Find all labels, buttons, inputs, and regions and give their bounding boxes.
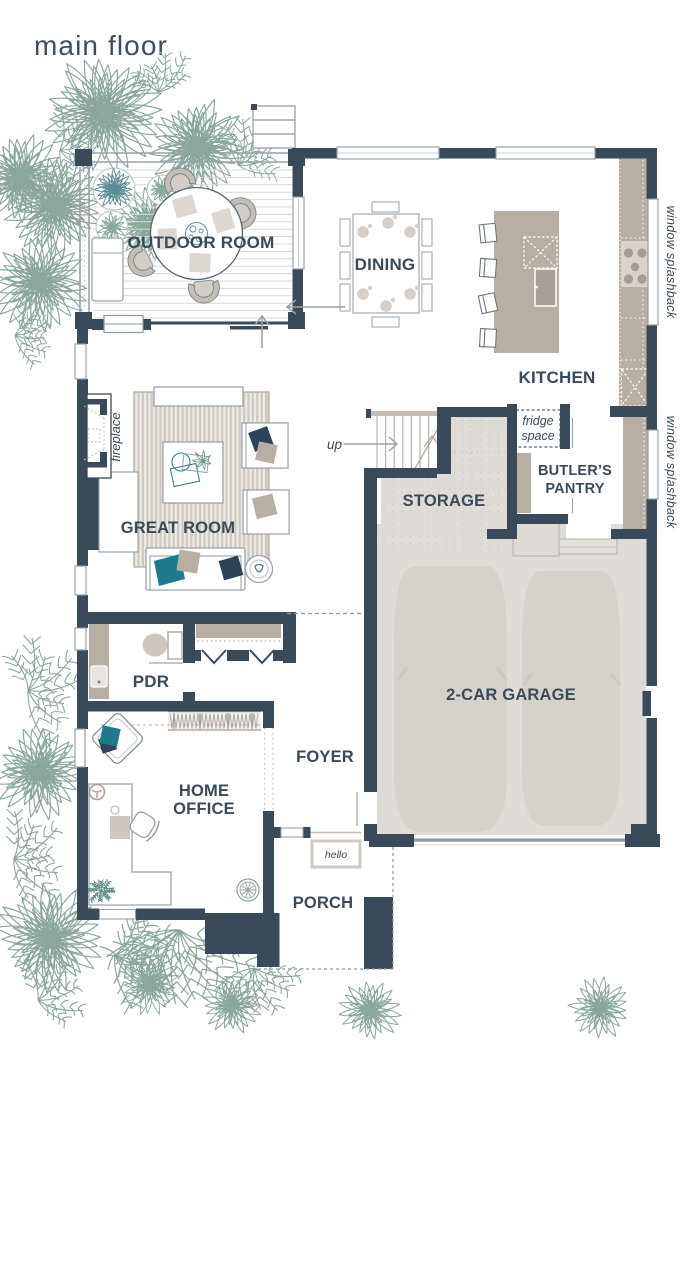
svg-text:PDR: PDR bbox=[133, 672, 170, 691]
svg-text:OFFICE: OFFICE bbox=[173, 800, 235, 818]
svg-text:GREAT ROOM: GREAT ROOM bbox=[121, 519, 235, 537]
svg-text:DINING: DINING bbox=[355, 255, 416, 274]
svg-text:fridge: fridge bbox=[522, 414, 553, 428]
svg-text:BUTLER’S: BUTLER’S bbox=[538, 463, 612, 479]
svg-text:window splashback: window splashback bbox=[664, 416, 678, 529]
svg-text:main floor: main floor bbox=[34, 30, 168, 61]
svg-text:OUTDOOR ROOM: OUTDOOR ROOM bbox=[128, 233, 275, 252]
svg-text:2-CAR GARAGE: 2-CAR GARAGE bbox=[446, 686, 576, 704]
svg-text:PORCH: PORCH bbox=[293, 894, 354, 912]
svg-text:STORAGE: STORAGE bbox=[403, 492, 486, 510]
svg-text:fireplace: fireplace bbox=[108, 412, 123, 461]
svg-text:PANTRY: PANTRY bbox=[545, 481, 604, 497]
svg-text:window splashback: window splashback bbox=[664, 206, 678, 319]
svg-text:up: up bbox=[327, 437, 343, 452]
svg-text:KITCHEN: KITCHEN bbox=[519, 368, 596, 387]
svg-text:FOYER: FOYER bbox=[296, 748, 354, 766]
svg-text:hello: hello bbox=[325, 849, 347, 861]
svg-text:HOME: HOME bbox=[179, 782, 229, 800]
svg-text:space: space bbox=[521, 429, 554, 443]
